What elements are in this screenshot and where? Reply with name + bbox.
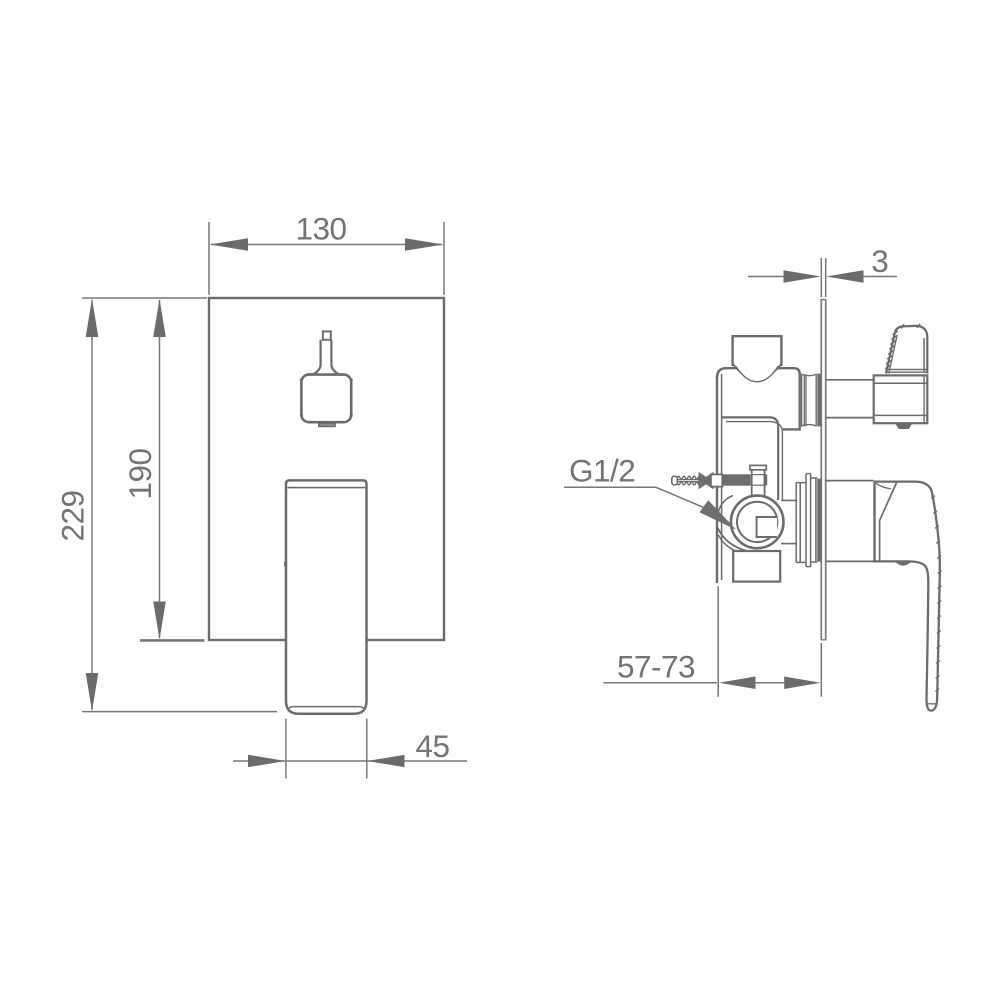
svg-text:G1/2: G1/2 [569,453,635,489]
svg-text:57-73: 57-73 [617,649,695,685]
svg-text:229: 229 [55,490,91,541]
svg-text:3: 3 [871,243,889,279]
svg-text:45: 45 [415,728,449,764]
svg-text:190: 190 [122,448,158,499]
svg-text:130: 130 [295,211,346,247]
